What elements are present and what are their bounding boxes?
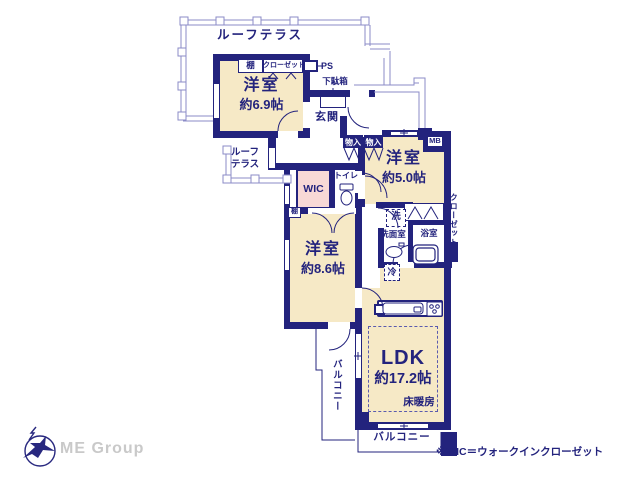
wall-segment [355, 412, 369, 424]
balcony-bottom-label: バルコニー [360, 431, 444, 443]
shelf-small-label: 棚 [288, 208, 301, 216]
floorplan: ルーフテラス ルーフ テラス 棚 クローゼット PS 下駄箱 玄関 物入 物入 … [0, 0, 640, 480]
wall-segment [369, 90, 375, 97]
window [391, 131, 417, 136]
shoe-cabinet-label: 下駄箱 [316, 77, 354, 87]
door-opening [328, 322, 350, 329]
storage-b-label: 物入 [364, 137, 383, 148]
door-opening [308, 208, 356, 214]
window [355, 334, 362, 378]
ps-label: PS [321, 61, 341, 71]
entrance-label: 玄関 [310, 111, 344, 124]
brand-text: ME Group [60, 440, 170, 458]
door-opening [398, 262, 414, 268]
door-opening [355, 288, 362, 308]
room-8.6-size: 約8.6帖 [290, 262, 356, 277]
corridor-lines [354, 78, 425, 128]
kitchen-side-box [374, 304, 385, 315]
toilet-icon [340, 184, 353, 205]
shoe-cabinet [320, 96, 346, 108]
roof-terrace2-label-line1: ルーフ [220, 148, 270, 159]
closet-6.9-label: クローゼット [263, 62, 303, 70]
kitchen-counter [377, 300, 443, 317]
closet-5.0 [404, 203, 444, 221]
window [284, 186, 290, 204]
wall-segment [284, 163, 362, 170]
meter-box-label: MB [426, 137, 444, 146]
washroom-label: 洗面室 [378, 230, 408, 240]
window [378, 423, 428, 429]
room-6.9-name: 洋室 [217, 77, 306, 95]
balcony-left-label: バルコニー [330, 356, 341, 414]
ldk-name: LDK [368, 347, 438, 370]
fridge-label: 冷 [384, 267, 400, 277]
pipe-space [303, 60, 318, 72]
ldk-size: 約17.2帖 [368, 371, 438, 388]
wic-label: WIC [296, 183, 331, 195]
washbasin-icon [386, 243, 404, 258]
room-5.0-name: 洋室 [364, 150, 444, 168]
storage-a-label: 物入 [343, 137, 363, 148]
door-opening [350, 90, 369, 97]
floor-heating-label: 床暖房 [384, 396, 454, 408]
room-5.0-size: 約5.0帖 [364, 171, 444, 186]
wall-segment [284, 322, 362, 329]
toilet-label: トイレ [334, 171, 356, 180]
room-6.9-size: 約6.9帖 [217, 98, 306, 113]
wic-footnote: ※WIC＝ウォークインクローゼット [436, 446, 636, 458]
room-8.6-name: 洋室 [290, 241, 356, 259]
shelf-label: 棚 [238, 61, 263, 71]
roof-terrace2-label-line2: テラス [220, 160, 270, 171]
door-opening [278, 131, 298, 138]
me-group-logo-icon [23, 427, 55, 466]
closet-5.0-label: クローゼット [449, 192, 458, 248]
roof-terrace-label: ルーフテラス [210, 28, 310, 42]
bathroom-label: 浴室 [415, 229, 443, 239]
washer-label: 洗 [386, 212, 406, 223]
